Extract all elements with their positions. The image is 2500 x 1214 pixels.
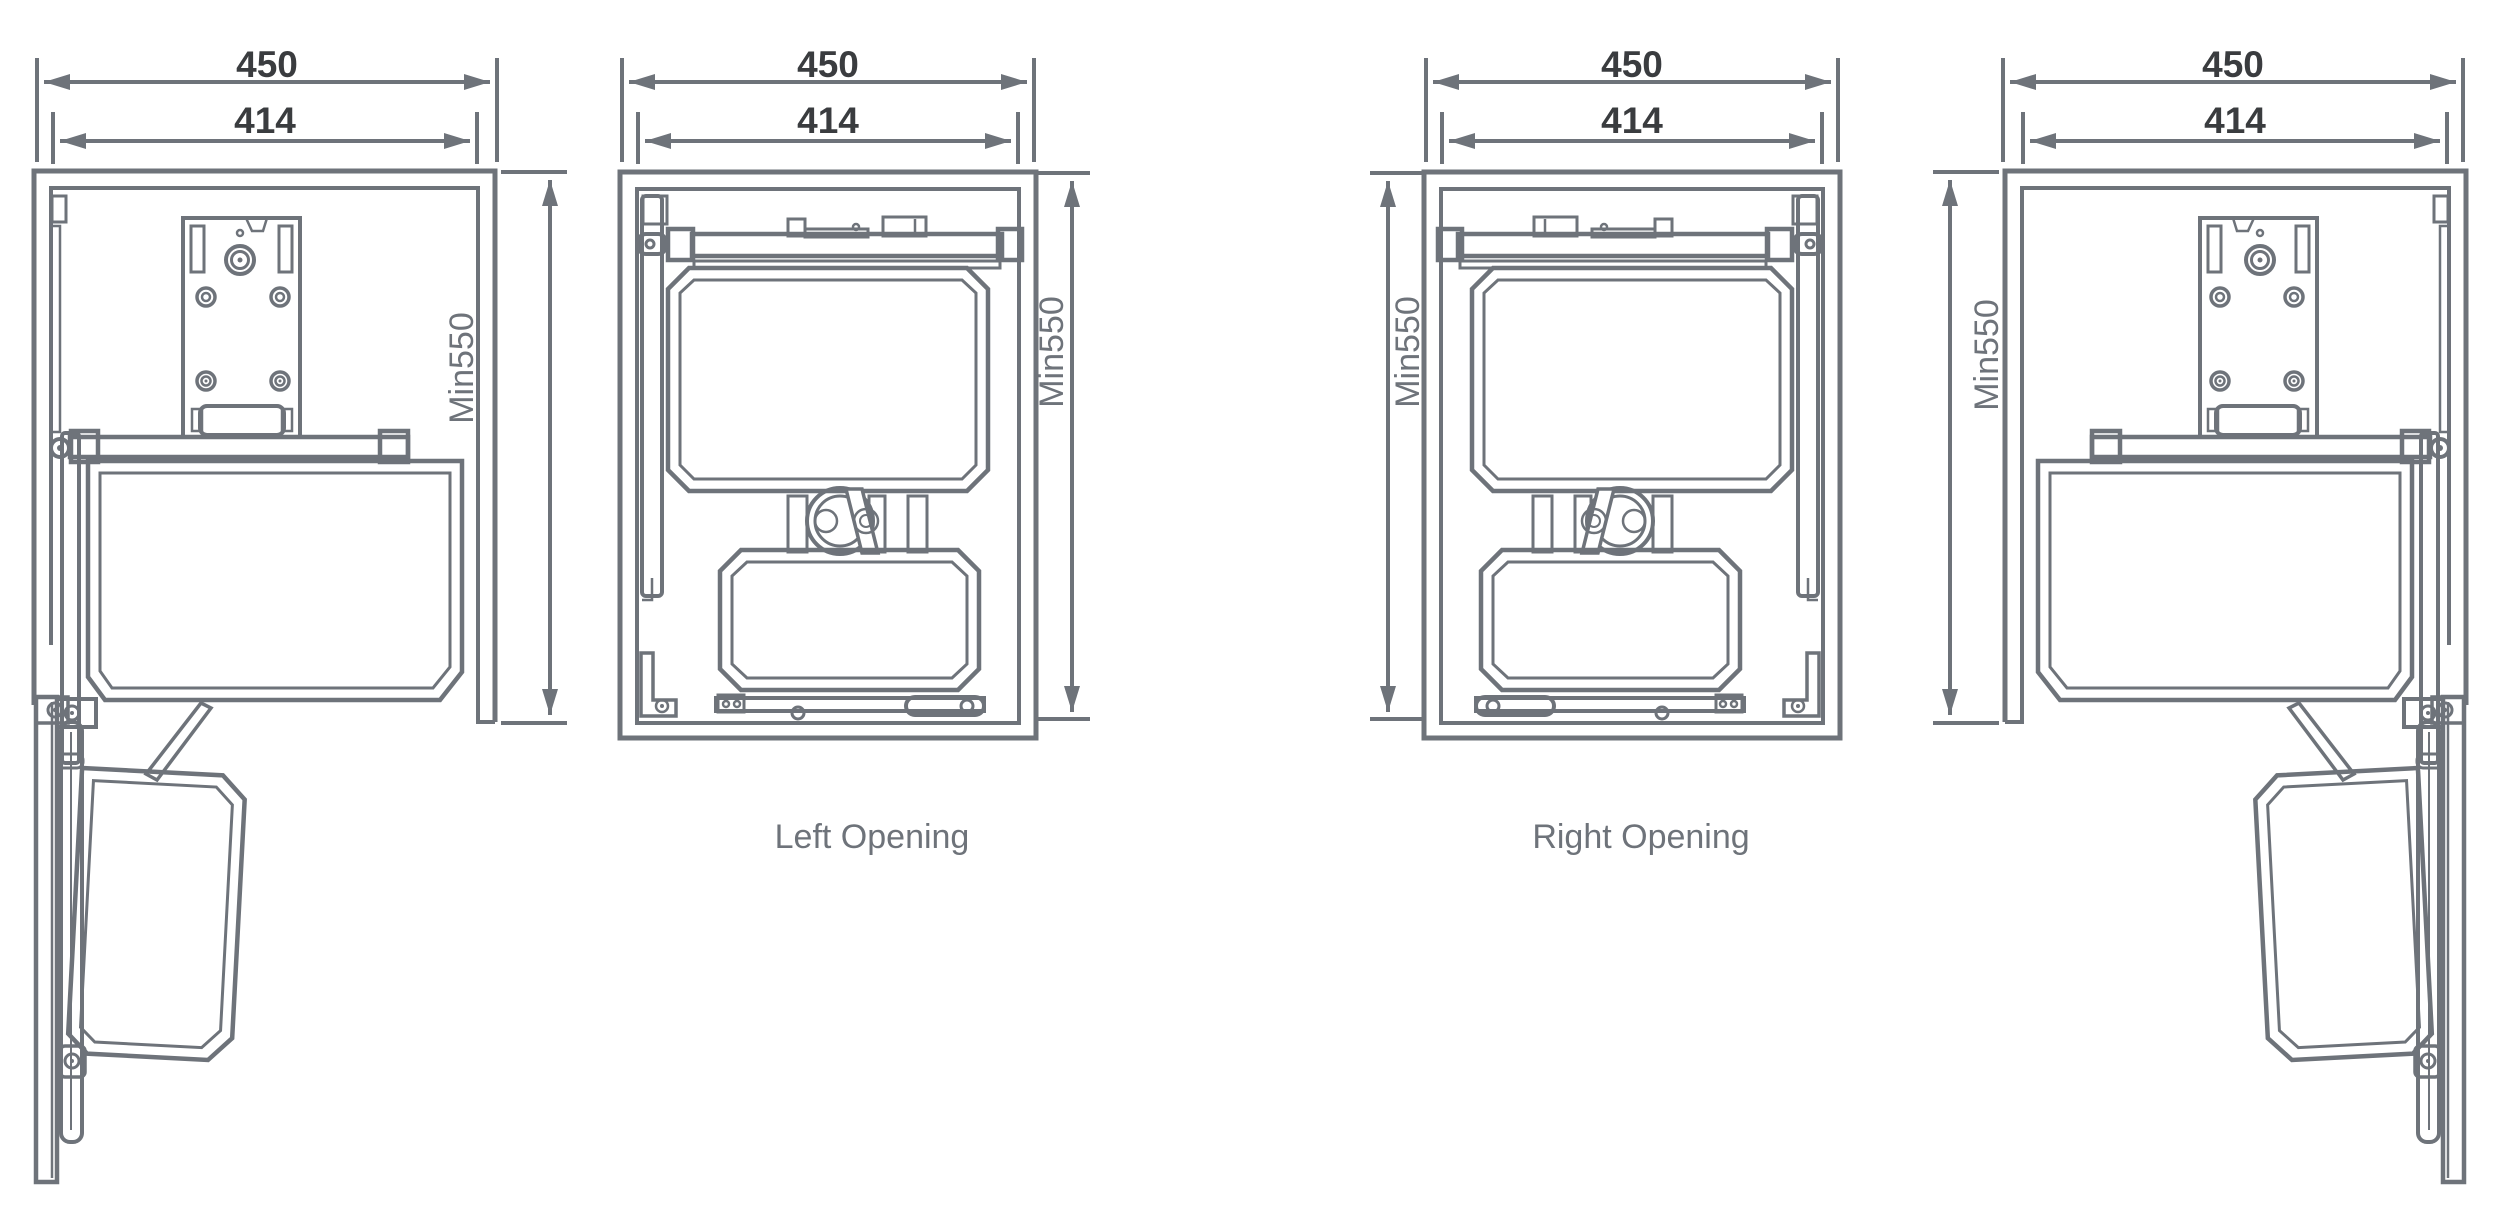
technical-drawing-page: 450 414 Min550 450 414 Min550 450 414 Mi… — [0, 0, 2500, 1214]
dim-inner-width-front-left: 414 — [797, 100, 859, 141]
panel-side-view-right — [1933, 58, 2466, 1182]
dim-outer-width-side-left: 450 — [236, 44, 298, 85]
caption-right-opening: Right Opening — [1532, 818, 1749, 856]
panel-side-view-left — [34, 58, 567, 1182]
caption-left-opening: Left Opening — [775, 818, 970, 856]
dim-outer-width-front-right: 450 — [1601, 44, 1663, 85]
cabinet-lift-installation-diagram: 450 414 Min550 450 414 Min550 450 414 Mi… — [0, 0, 2500, 1214]
dim-height-front-left: Min550 — [1033, 296, 1071, 408]
dim-inner-width-front-right: 414 — [1601, 100, 1663, 141]
dim-outer-width-side-right: 450 — [2202, 44, 2264, 85]
dim-inner-width-side-left: 414 — [234, 100, 296, 141]
panel-front-view-right-opening — [1370, 58, 1840, 738]
dim-outer-width-front-left: 450 — [797, 44, 859, 85]
dim-height-side-left: Min550 — [443, 312, 481, 424]
dim-height-front-right: Min550 — [1389, 296, 1427, 408]
dim-height-side-right: Min550 — [1968, 299, 2006, 411]
panel-front-view-left-opening — [620, 58, 1090, 738]
dim-inner-width-side-right: 414 — [2204, 100, 2266, 141]
